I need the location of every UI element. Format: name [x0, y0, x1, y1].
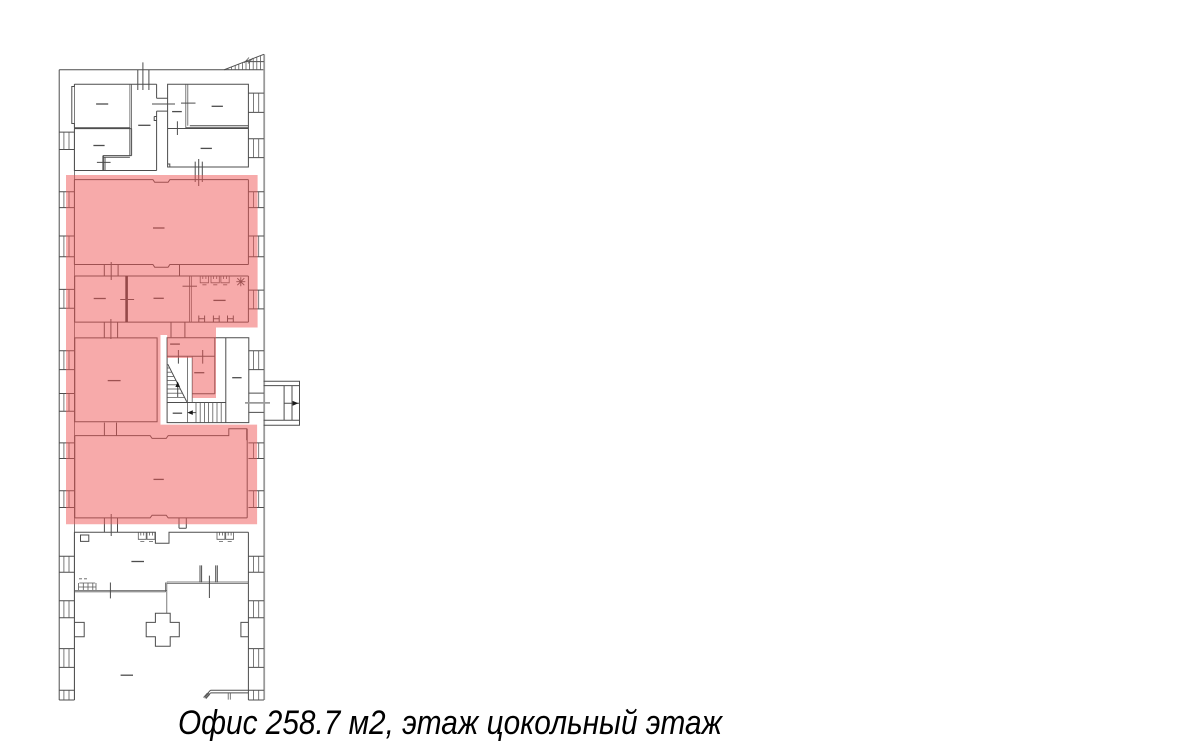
svg-text:Офис 258.7 м2, этаж цокольный: Офис 258.7 м2, этаж цокольный этаж: [178, 704, 723, 742]
